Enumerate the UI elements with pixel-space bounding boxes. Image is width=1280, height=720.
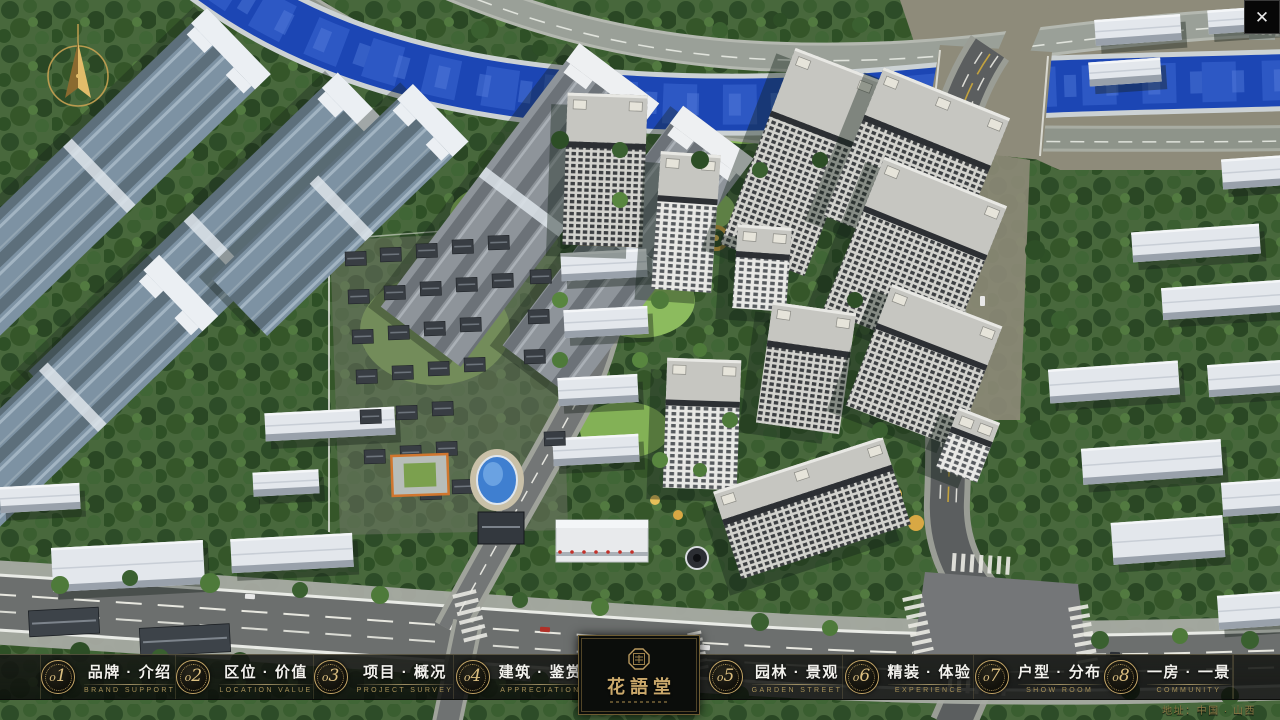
project-logo-panel[interactable]: 花語堂 — [578, 635, 700, 715]
nav-label-zh: 区位 · 价值 — [224, 661, 308, 682]
nav-item-location[interactable]: o2 区位 · 价值 LOCATION VALUE — [176, 655, 313, 699]
nav-rule — [219, 684, 312, 685]
nav-label-zh: 项目 · 概况 — [363, 661, 447, 682]
nav-label-en: APPRECIATION — [500, 687, 580, 694]
nav-item-number-badge: o3 — [314, 660, 348, 694]
site-plan-render — [0, 0, 1280, 720]
nav-label-en: PROJECT SURVEY — [357, 687, 454, 694]
project-name: 花語堂 — [602, 673, 676, 699]
project-address: 地址：中国 · 山西 — [1162, 702, 1256, 717]
logo-ornament — [610, 701, 668, 703]
nav-rule — [752, 684, 843, 685]
nav-label-zh: 一房 · 一景 — [1147, 661, 1231, 682]
nav-bar-stub — [1233, 655, 1280, 699]
nav-item-number-badge: o6 — [845, 660, 879, 694]
nav-label-zh: 户型 · 分布 — [1018, 661, 1102, 682]
nav-label-en: LOCATION VALUE — [219, 687, 312, 694]
nav-rule — [499, 684, 583, 685]
nav-item-architecture[interactable]: o4 建筑 · 鉴赏 APPRECIATION — [454, 655, 584, 699]
nav-label-en: EXPERIENCE — [895, 687, 964, 694]
nav-rule — [84, 684, 175, 685]
nav-rule — [1018, 684, 1102, 685]
close-button[interactable]: ✕ — [1244, 0, 1280, 34]
nav-item-garden[interactable]: o5 园林 · 景观 GARDEN STREET — [709, 655, 844, 699]
presentation-window: ✕ o1 品牌 · 介绍 BRAND SUPPORT o2 区位 · 价值 LO… — [0, 0, 1280, 720]
nav-item-number-badge: o7 — [975, 660, 1009, 694]
nav-label-zh: 精装 · 体验 — [888, 661, 972, 682]
nav-label-zh: 品牌 · 介绍 — [88, 661, 172, 682]
nav-rule — [357, 684, 454, 685]
nav-item-number-badge: o4 — [456, 660, 490, 694]
nav-item-number-badge: o8 — [1104, 660, 1138, 694]
nav-item-number-badge: o5 — [709, 660, 743, 694]
nav-label-en: COMMUNITY — [1157, 687, 1222, 694]
nav-item-brand[interactable]: o1 品牌 · 介绍 BRAND SUPPORT — [41, 655, 176, 699]
nav-item-project[interactable]: o3 项目 · 概况 PROJECT SURVEY — [314, 655, 455, 699]
nav-rule — [888, 684, 972, 685]
nav-label-zh: 园林 · 景观 — [755, 661, 839, 682]
nav-rule — [1147, 684, 1231, 685]
logo-seal-icon — [627, 647, 651, 671]
nav-item-number-badge: o2 — [176, 660, 210, 694]
nav-label-en: GARDEN STREET — [752, 687, 843, 694]
nav-item-number-badge: o1 — [41, 660, 75, 694]
nav-item-interior[interactable]: o6 精装 · 体验 EXPERIENCE — [843, 655, 973, 699]
nav-label-en: BRAND SUPPORT — [84, 687, 175, 694]
nav-label-en: SHOW ROOM — [1026, 687, 1093, 694]
close-icon: ✕ — [1255, 9, 1269, 26]
nav-item-floorplans[interactable]: o7 户型 · 分布 SHOW ROOM — [974, 655, 1103, 699]
nav-bar-stub — [0, 655, 41, 699]
nav-label-zh: 建筑 · 鉴赏 — [499, 661, 583, 682]
nav-item-community[interactable]: o8 一房 · 一景 COMMUNITY — [1103, 655, 1233, 699]
